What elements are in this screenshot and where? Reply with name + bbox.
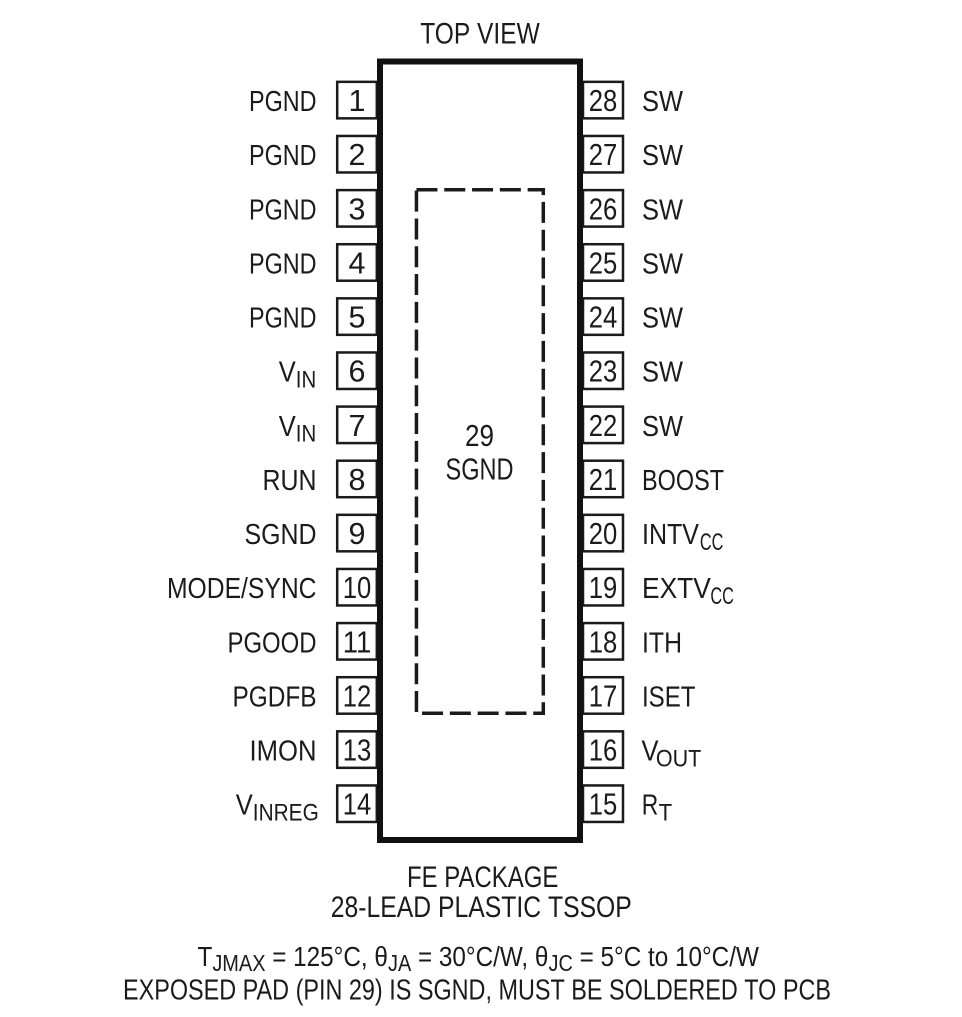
svg-text:SGND: SGND [446, 451, 514, 486]
svg-text:17: 17 [589, 679, 618, 713]
svg-text:SW: SW [642, 140, 684, 172]
svg-text:29: 29 [465, 418, 494, 453]
svg-text:9: 9 [349, 517, 366, 551]
svg-text:24: 24 [589, 301, 618, 335]
svg-text:= 30°C/W, θ: = 30°C/W, θ [411, 940, 548, 972]
svg-text:V: V [279, 357, 297, 389]
svg-text:5: 5 [349, 301, 366, 335]
svg-text:PGND: PGND [249, 303, 317, 335]
svg-text:PGDFB: PGDFB [233, 681, 317, 713]
svg-text:PGND: PGND [249, 248, 317, 280]
svg-text:CC: CC [710, 583, 734, 610]
svg-text:22: 22 [589, 409, 618, 443]
svg-text:EXPOSED PAD (PIN 29) IS SGND,: EXPOSED PAD (PIN 29) IS SGND, MUST BE SO… [123, 975, 831, 1007]
svg-text:27: 27 [589, 138, 618, 172]
svg-text:28: 28 [589, 84, 618, 118]
svg-text:SW: SW [642, 411, 684, 443]
svg-text:23: 23 [589, 355, 618, 389]
svg-text:16: 16 [589, 734, 618, 768]
svg-text:21: 21 [589, 463, 618, 497]
svg-text:10: 10 [343, 571, 372, 605]
svg-text:BOOST: BOOST [642, 465, 724, 497]
svg-text:ISET: ISET [642, 681, 696, 713]
svg-text:7: 7 [349, 409, 366, 443]
svg-text:= 5°C to 10°C/W: = 5°C to 10°C/W [573, 940, 759, 972]
svg-text:TOP VIEW: TOP VIEW [420, 17, 540, 50]
svg-text:11: 11 [343, 625, 372, 659]
svg-text:25: 25 [589, 246, 618, 280]
svg-text:28-LEAD PLASTIC TSSOP: 28-LEAD PLASTIC TSSOP [331, 891, 632, 924]
svg-text:JC: JC [549, 951, 573, 977]
svg-text:FE PACKAGE: FE PACKAGE [407, 861, 559, 894]
svg-text:RUN: RUN [263, 465, 317, 497]
svg-text:18: 18 [589, 625, 618, 659]
svg-text:R: R [642, 790, 659, 822]
svg-text:4: 4 [349, 246, 366, 280]
svg-text:IN: IN [296, 421, 316, 448]
svg-text:EXTV: EXTV [642, 573, 711, 605]
svg-text:PGND: PGND [249, 86, 317, 118]
svg-text:ITH: ITH [642, 627, 682, 659]
svg-text:SW: SW [642, 194, 684, 226]
svg-text:13: 13 [343, 734, 372, 768]
svg-text:IMON: IMON [250, 736, 317, 768]
svg-text:12: 12 [343, 679, 372, 713]
svg-text:= 125°C, θ: = 125°C, θ [266, 940, 388, 972]
svg-text:T: T [659, 800, 673, 827]
svg-text:20: 20 [589, 517, 618, 551]
svg-text:INREG: INREG [253, 800, 319, 827]
svg-text:1: 1 [349, 84, 366, 118]
svg-text:IN: IN [296, 367, 316, 394]
svg-text:V: V [236, 790, 254, 822]
svg-text:JA: JA [388, 951, 412, 977]
svg-text:2: 2 [349, 138, 366, 172]
svg-text:SW: SW [642, 248, 684, 280]
svg-text:T: T [198, 940, 213, 972]
svg-text:INTV: INTV [642, 519, 700, 551]
svg-text:14: 14 [343, 788, 372, 822]
svg-text:PGOOD: PGOOD [228, 627, 317, 659]
svg-text:CC: CC [700, 529, 724, 556]
svg-text:6: 6 [349, 355, 366, 389]
svg-text:SW: SW [642, 357, 684, 389]
svg-text:SW: SW [642, 86, 684, 118]
svg-text:JMAX: JMAX [212, 951, 265, 977]
svg-text:PGND: PGND [249, 140, 317, 172]
svg-text:PGND: PGND [249, 194, 317, 226]
svg-text:26: 26 [589, 192, 618, 226]
svg-text:8: 8 [349, 463, 366, 497]
svg-text:OUT: OUT [656, 745, 701, 772]
svg-text:SW: SW [642, 303, 684, 335]
svg-text:V: V [279, 411, 297, 443]
svg-text:19: 19 [589, 571, 618, 605]
svg-text:MODE/SYNC: MODE/SYNC [167, 573, 317, 605]
svg-text:15: 15 [589, 788, 618, 822]
svg-text:3: 3 [349, 192, 366, 226]
svg-text:SGND: SGND [245, 519, 317, 551]
